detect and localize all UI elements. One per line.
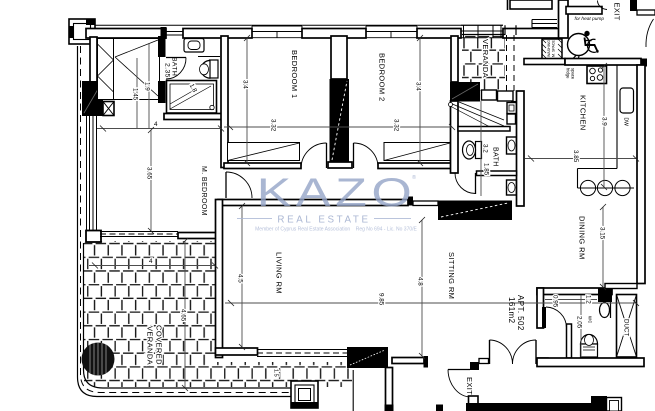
svg-text:161m2: 161m2: [507, 297, 516, 324]
svg-text:SITTING RM: SITTING RM: [447, 252, 456, 299]
svg-text:DW: DW: [623, 118, 629, 127]
svg-text:DUCT: DUCT: [623, 319, 630, 336]
svg-text:4.8: 4.8: [417, 277, 424, 286]
svg-text:Member of Cyprus Real Estate A: Member of Cyprus Real Estate Association…: [255, 227, 417, 233]
svg-text:®: ®: [412, 174, 416, 181]
svg-text:1.85: 1.85: [483, 163, 490, 176]
svg-text:2.35: 2.35: [164, 63, 171, 78]
svg-text:wc: wc: [587, 315, 593, 324]
svg-text:M. SPACE: M. SPACE: [552, 39, 556, 57]
svg-text:BEDROOM 2: BEDROOM 2: [378, 53, 387, 102]
svg-text:3.4: 3.4: [415, 82, 422, 91]
svg-text:KITCHEN: KITCHEN: [579, 95, 588, 131]
svg-text:4.5: 4.5: [237, 274, 244, 283]
svg-text:COVERED: COVERED: [155, 325, 164, 365]
svg-text:APT. 502: APT. 502: [516, 295, 525, 331]
svg-text:2.05: 2.05: [576, 316, 583, 329]
svg-text:M. BEDROOM: M. BEDROOM: [200, 166, 207, 216]
svg-text:3.85: 3.85: [572, 150, 579, 163]
svg-text:1.9: 1.9: [144, 82, 151, 91]
svg-text:3.32: 3.32: [270, 119, 277, 132]
svg-text:1.5: 1.5: [273, 369, 279, 377]
svg-text:4.65: 4.65: [180, 309, 187, 322]
svg-text:4: 4: [154, 121, 158, 128]
svg-text:DINING RM: DINING RM: [578, 216, 587, 260]
svg-text:WASHING: WASHING: [547, 40, 551, 57]
svg-text:3.2: 3.2: [482, 144, 489, 153]
svg-text:VERANDA: VERANDA: [146, 326, 155, 365]
svg-text:3.15: 3.15: [599, 227, 606, 240]
svg-text:BATH: BATH: [492, 147, 499, 167]
svg-text:EXIT: EXIT: [465, 377, 474, 395]
svg-text:REAL ESTATE: REAL ESTATE: [277, 215, 370, 226]
svg-text:BEDROOM 1: BEDROOM 1: [290, 50, 299, 99]
svg-text:4: 4: [149, 258, 153, 265]
svg-text:for heat pump: for heat pump: [575, 16, 605, 22]
svg-text:EXIT: EXIT: [613, 3, 622, 21]
svg-text:VERANDA: VERANDA: [481, 39, 490, 78]
svg-text:KAZO: KAZO: [257, 170, 417, 215]
svg-text:3.32: 3.32: [393, 119, 400, 132]
svg-text:9.85: 9.85: [378, 293, 385, 306]
svg-text:space: space: [571, 68, 576, 80]
svg-text:LIVING RM: LIVING RM: [275, 252, 284, 294]
svg-text:3.65: 3.65: [146, 167, 153, 180]
svg-text:1.45: 1.45: [132, 88, 139, 101]
svg-text:0.95: 0.95: [552, 295, 559, 308]
svg-text:3.4: 3.4: [242, 80, 249, 89]
svg-text:3.9: 3.9: [601, 117, 608, 126]
svg-text:fridge: fridge: [566, 68, 571, 79]
svg-text:1.2: 1.2: [585, 295, 592, 304]
svg-text:BATH: BATH: [171, 57, 178, 76]
